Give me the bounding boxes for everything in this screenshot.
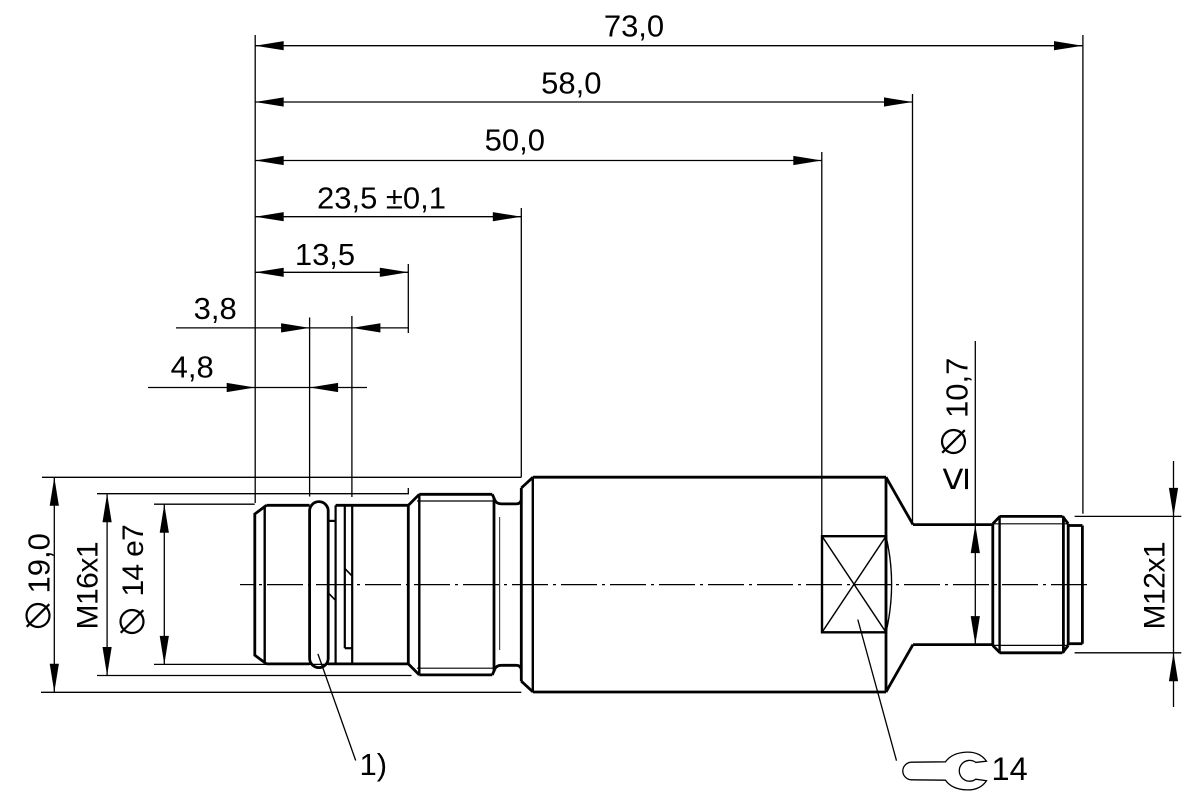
svg-text:14: 14 bbox=[992, 751, 1028, 787]
svg-text:73,0: 73,0 bbox=[604, 9, 664, 44]
svg-text:13,5: 13,5 bbox=[295, 237, 355, 272]
svg-text:M16x1: M16x1 bbox=[72, 542, 105, 630]
svg-text:14 e7: 14 e7 bbox=[117, 525, 150, 597]
svg-text:≤: ≤ bbox=[930, 467, 977, 490]
svg-text:4,8: 4,8 bbox=[171, 349, 214, 384]
svg-text:M12x1: M12x1 bbox=[1139, 542, 1172, 630]
svg-text:23,5 ±0,1: 23,5 ±0,1 bbox=[317, 180, 446, 215]
svg-text:19,0: 19,0 bbox=[22, 533, 57, 593]
svg-text:1): 1) bbox=[360, 747, 388, 782]
svg-text:10,7: 10,7 bbox=[940, 358, 975, 418]
svg-text:58,0: 58,0 bbox=[541, 66, 601, 101]
svg-text:3,8: 3,8 bbox=[194, 291, 237, 326]
svg-text:50,0: 50,0 bbox=[485, 122, 545, 157]
